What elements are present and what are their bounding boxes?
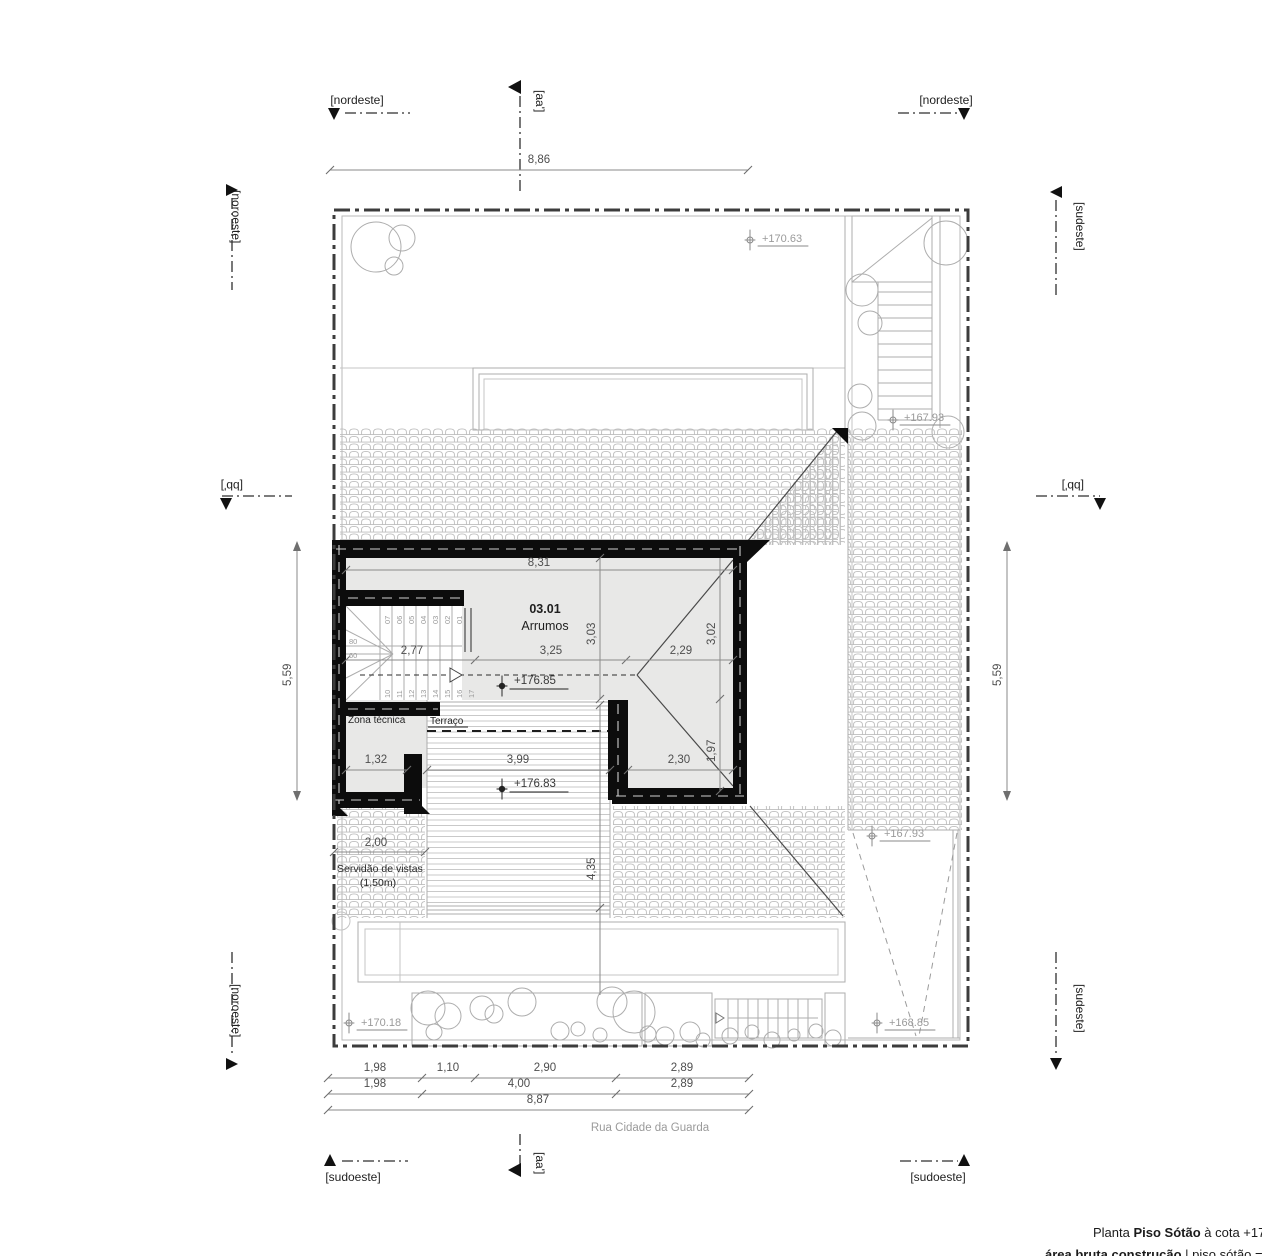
dim-side-right: 5,59 — [992, 664, 1004, 686]
svg-text:06: 06 — [395, 616, 404, 624]
svg-text:03: 03 — [431, 616, 440, 624]
roof-hatch-lower-right — [613, 806, 845, 918]
svg-text:17: 17 — [467, 690, 476, 698]
room-name-zona-tecnica: Zona técnica — [348, 715, 406, 726]
svg-text:60: 60 — [349, 651, 357, 660]
dim-terrace-length: 4,35 — [586, 858, 598, 880]
dim-room-depth-left: 3,03 — [586, 623, 598, 645]
svg-text:15: 15 — [443, 690, 452, 698]
svg-text:12: 12 — [407, 690, 416, 698]
dim-right-width: 2,29 — [670, 645, 692, 657]
section-arrow — [508, 1163, 521, 1177]
svg-text:+170.63: +170.63 — [762, 233, 802, 245]
label-sudoeste-left: [sudoeste] — [325, 1170, 380, 1184]
label-aa-top: [aa'] — [533, 90, 547, 112]
drawing-title: Planta Piso Sótão à cota +17 área bruta … — [1045, 1225, 1262, 1256]
svg-text:+176.85: +176.85 — [514, 675, 556, 687]
svg-text:14: 14 — [431, 690, 440, 698]
dim-side-left: 5,59 — [282, 664, 294, 686]
elevation-garden-bottom: +170.18 — [344, 1013, 407, 1033]
section-arrow — [958, 108, 970, 120]
svg-text:+167.93: +167.93 — [884, 828, 924, 840]
section-arrow — [324, 1154, 336, 1166]
label-sudoeste-right: [sudoeste] — [910, 1170, 965, 1184]
label-noroeste-bottom: [noroeste] — [229, 984, 243, 1037]
elevation-garden-top: +170.63 — [745, 230, 808, 250]
dim-top: 8,86 — [528, 154, 550, 166]
section-arrow — [328, 108, 340, 120]
section-arrow — [220, 498, 232, 510]
svg-text:16: 16 — [455, 690, 464, 698]
elevation-ramp-bottom: +168.85 — [872, 1013, 935, 1033]
stair-direction-arrow — [716, 1013, 724, 1023]
dim-room-depth-right: 3,02 — [706, 623, 718, 645]
room-number-arrumos: 03.01 — [529, 602, 560, 616]
title-line2: área bruta construção | piso sótão = 03 — [1045, 1247, 1262, 1256]
tree-circles-top — [351, 222, 415, 275]
floor-plan-page: [nordeste] [nordeste] [aa'] [noroeste] [… — [0, 0, 1262, 1256]
dim-zona-width: 1,32 — [365, 754, 387, 766]
note-servidao-2: (1,50m) — [360, 877, 396, 889]
label-nordeste-left: [nordeste] — [330, 93, 383, 107]
dim-mid-width: 3,25 — [540, 645, 562, 657]
label-bb-right: [bb'] — [1062, 479, 1084, 493]
street-name: Rua Cidade da Guarda — [591, 1122, 710, 1134]
section-arrow — [1050, 186, 1062, 198]
planting-beds — [411, 987, 845, 1048]
dim-row2-a: 1,98 — [364, 1078, 386, 1090]
stair-landing-diagonal — [852, 218, 932, 282]
svg-text:+167.93: +167.93 — [904, 412, 944, 424]
section-arrow — [958, 1154, 970, 1166]
svg-text:04: 04 — [419, 616, 428, 624]
svg-text:11: 11 — [395, 690, 404, 698]
driveway-ramp — [848, 830, 960, 1038]
dim-lower-right-width: 2,30 — [668, 754, 690, 766]
dim-row1-a: 1,98 — [364, 1062, 386, 1074]
elevation-stairs-top: +167.93 — [888, 410, 950, 430]
wall-top-wedge — [747, 540, 770, 562]
rooflight-band — [473, 368, 813, 430]
section-arrow — [1094, 498, 1106, 510]
floor-plan-drawing: [nordeste] [nordeste] [aa'] [noroeste] [… — [0, 0, 1262, 1256]
dim-row1-c: 2,90 — [534, 1062, 556, 1074]
stair-steps-lines — [878, 216, 940, 428]
dim-servidao: 2,00 — [365, 837, 387, 849]
dim-room-width: 8,31 — [528, 557, 550, 569]
svg-text:+170.18: +170.18 — [361, 1017, 401, 1029]
section-arrow — [1050, 1058, 1062, 1070]
dim-row2-b: 4,00 — [508, 1078, 530, 1090]
svg-text:+168.85: +168.85 — [889, 1017, 929, 1029]
dim-row1-d: 2,89 — [671, 1062, 693, 1074]
dim-row2-c: 2,89 — [671, 1078, 693, 1090]
label-aa-bottom: [aa'] — [533, 1152, 547, 1174]
section-arrow — [508, 80, 521, 94]
svg-text:02: 02 — [443, 616, 452, 624]
svg-text:01: 01 — [455, 616, 464, 624]
svg-text:80: 80 — [349, 637, 357, 646]
dim-stair-width: 2,77 — [401, 645, 423, 657]
title-line1: Planta Piso Sótão à cota +17 — [1093, 1225, 1262, 1240]
lower-patio — [332, 912, 845, 982]
label-sudeste-top: [sudeste] — [1073, 202, 1087, 251]
terrace-decking — [427, 706, 610, 904]
label-sudeste-bottom: [sudeste] — [1073, 984, 1087, 1033]
wall-terrace-right — [608, 700, 628, 800]
label-nordeste-right: [nordeste] — [919, 93, 972, 107]
svg-text:13: 13 — [419, 690, 428, 698]
dim-row3: 8,87 — [527, 1094, 549, 1106]
room-name-arrumos: Arrumos — [521, 619, 568, 633]
label-noroeste-top: [noroeste] — [229, 190, 243, 243]
exterior-stair-bottom — [715, 999, 822, 1038]
svg-text:07: 07 — [383, 616, 392, 624]
room-name-terraco: Terraço — [430, 716, 464, 727]
svg-text:+176.83: +176.83 — [514, 778, 556, 790]
roof-hatch-right — [848, 428, 962, 830]
svg-text:05: 05 — [407, 616, 416, 624]
section-arrow — [226, 1058, 238, 1070]
dim-room-lower-right: 1,97 — [706, 740, 718, 762]
svg-text:10: 10 — [383, 690, 392, 698]
label-bb-left: [bb'] — [221, 479, 243, 493]
dim-terrace-width: 3,99 — [507, 754, 529, 766]
note-servidao-1: Servidão de vistas — [337, 863, 423, 875]
dim-row1-b: 1,10 — [437, 1062, 459, 1074]
